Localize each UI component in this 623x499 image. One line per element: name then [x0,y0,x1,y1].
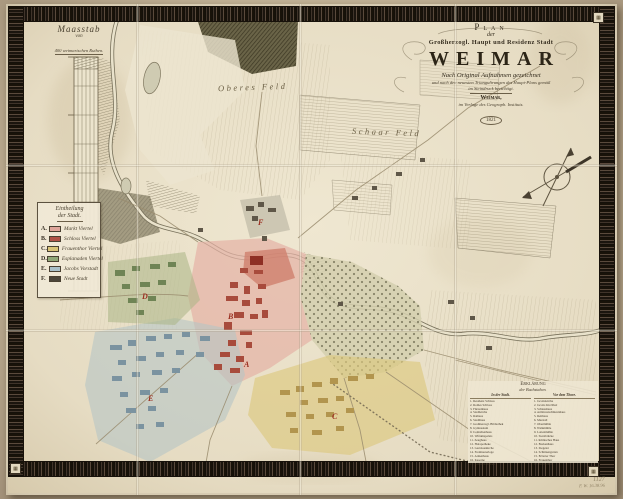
legend-row: C. Frauenthor Viertel [41,244,98,254]
reference-column-gates: Vor dem Thore. 1. Jacobskirche2. Jacobs … [534,393,595,467]
cartouche-place: Weimar, [393,94,589,102]
legend-key: F. [41,276,49,282]
legend-key: E. [41,266,49,272]
legend-rule [57,221,83,222]
district-letter-d: D [142,292,148,301]
legend-label: Markt Viertel [64,226,93,232]
reference-col2-title: Vor dem Thore. [534,393,595,399]
scale-title: Maasstab [36,24,122,34]
border-band-top [9,7,614,21]
place-name: Weimar, [470,93,511,101]
legend-label: Neue Stadt [64,276,88,282]
legend-key: A. [41,226,49,232]
cartouche-line3: im Steindruck berichtigt. [393,86,589,92]
legend-row: B. Schloss Viertel [41,234,98,244]
cartouche-year: 1821 [480,116,502,125]
list-item: 17. Landschaftshaus [470,463,531,467]
district-letter-e: E [148,394,153,403]
legend-key: B. [41,236,49,242]
reference-col1-title: In der Stadt. [470,393,531,399]
legend-swatch [49,266,61,272]
cartouche-subtitle: Großherzogl. Haupt und Residenz Stadt [393,39,589,47]
pencil-note-2: F. W. 16.38.96 [579,483,605,489]
reference-header-2: der Buchstaben. [470,388,596,393]
legend-label: Jacobs Vorstadt [64,266,98,272]
border-band-right [600,7,614,476]
district-letter-b: B [228,312,233,321]
reference-column-city: In der Stadt. 1. Residenz Schloss2. Roth… [470,393,531,467]
legend-title-line2: der Stadt. [41,213,98,220]
reference-col2-items: 1. Jacobskirche2. Jacobs Kirchhof3. Schi… [534,400,595,467]
scale-unit: 400 weimarischen Ruthen. [55,48,104,55]
corner-label-top-right: ▦ [593,12,604,23]
legend-row: D. Esplanaden Viertel [41,254,98,264]
list-item: 17. Jacobsthor [534,463,595,467]
legend-label: Frauenthor Viertel [62,246,102,252]
cartouche-der: der [393,32,589,39]
legend-row: E. Jacobs Vorstadt [41,264,98,274]
title-cartouche: Plan der Großherzogl. Haupt und Residenz… [393,22,589,126]
legend-swatch [49,276,61,282]
legend-swatch [47,256,59,262]
legend-label: Schloss Viertel [64,236,96,242]
screenshot-root: { "cartouche": { "plan": "Plan", "der": … [0,0,623,499]
corner-label-bottom-left: ▦ [10,463,21,474]
legend-swatch [49,226,61,232]
legend-swatch [49,236,61,242]
district-letter-a: A [244,360,249,369]
district-legend: Eintheilung der Stadt. A. Markt Viertel … [37,202,101,298]
margin-pencil-notes: 1127 F. W. 16.38.96 [579,477,605,489]
legend-row: F. Neue Stadt [41,274,98,284]
corner-label-bottom-right: ▦ [588,466,599,477]
scale-bar-caption: Maasstab von 400 weimarischen Ruthen. [36,24,122,57]
legend-title-line1: Eintheilung [41,206,98,213]
cartouche-line1: Nach Original Aufnahmen gezeichnet [393,71,589,80]
legend-label: Esplanaden Viertel [62,256,103,262]
cartouche-plan: Plan [393,22,589,32]
district-letter-f: F [258,218,263,227]
border-band-left [9,7,23,476]
scale-connector: von [36,34,122,39]
district-letter-c: C [332,412,337,421]
legend-swatch [47,246,59,252]
map-title: WEIMAR [393,47,589,71]
legend-row: A. Markt Viertel [41,224,98,234]
reference-list: Erklärung der Buchstaben. In der Stadt. … [468,381,598,463]
reference-col1-items: 1. Residenz Schloss2. Rothes Schloss3. F… [470,400,531,467]
